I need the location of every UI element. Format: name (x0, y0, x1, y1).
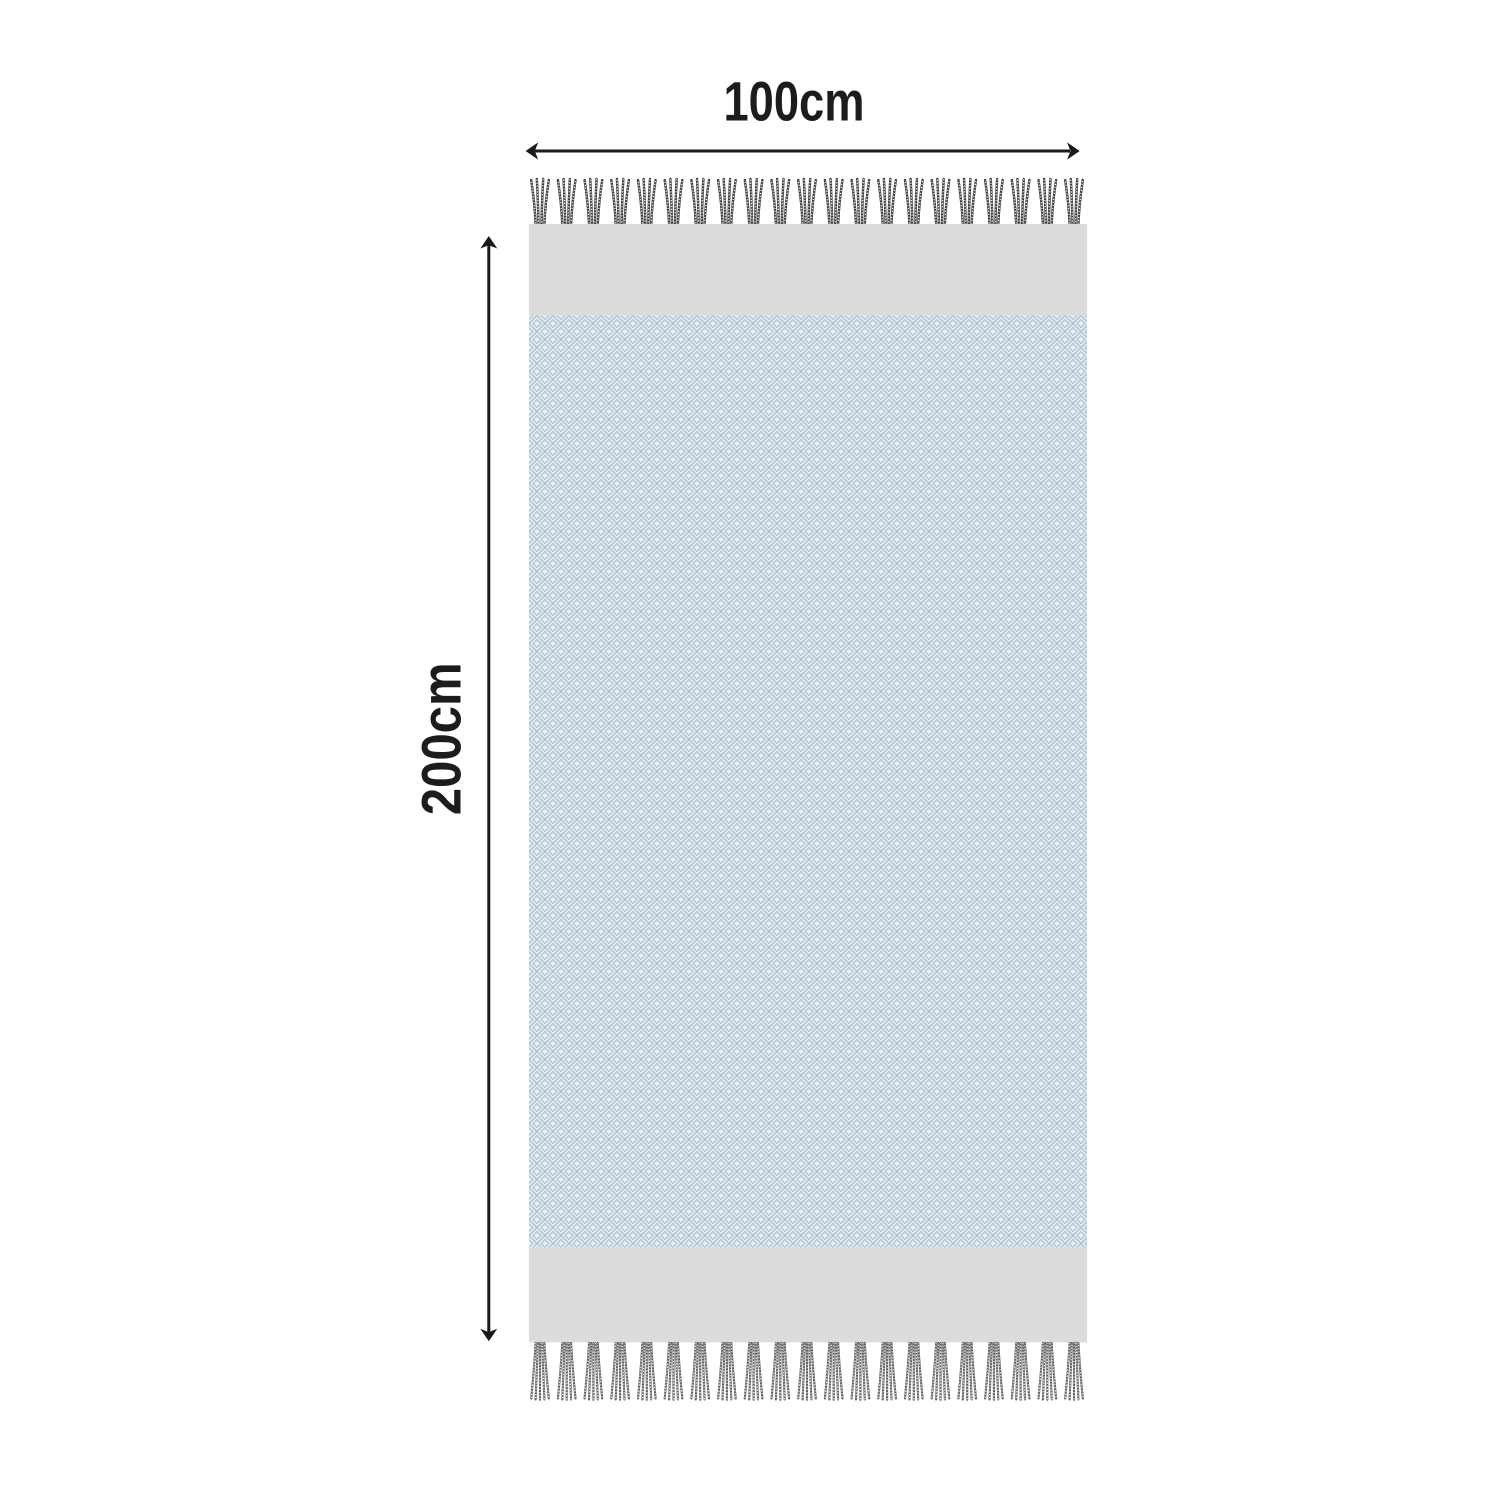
svg-text:200cm: 200cm (410, 662, 473, 815)
svg-text:100cm: 100cm (724, 70, 865, 133)
